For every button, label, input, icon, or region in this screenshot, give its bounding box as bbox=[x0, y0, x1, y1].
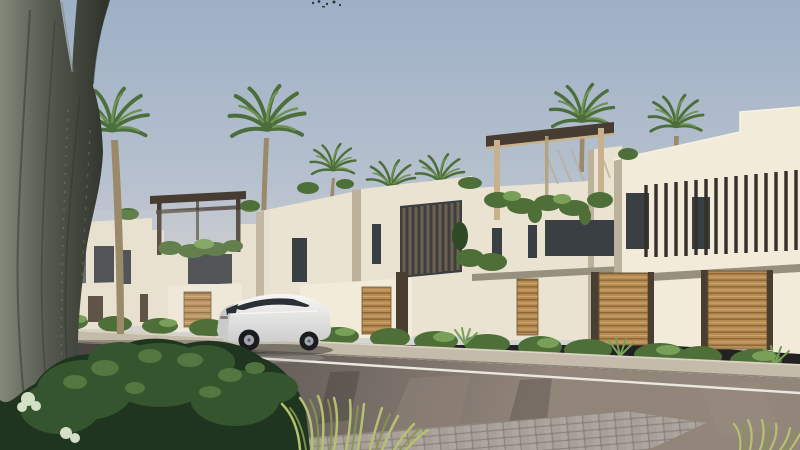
window-slot bbox=[372, 224, 381, 264]
car-taillight bbox=[220, 316, 228, 319]
garage-wood-panel bbox=[517, 279, 538, 335]
door-jamb bbox=[648, 272, 654, 346]
car-wheel-front bbox=[300, 332, 319, 351]
garage-wood-panel bbox=[599, 273, 648, 345]
villa-street-render bbox=[0, 0, 800, 450]
door-jamb bbox=[591, 272, 599, 346]
window-slot bbox=[528, 225, 537, 258]
window-large-dark bbox=[545, 220, 625, 256]
villa-louver bbox=[346, 176, 472, 338]
garage-wood-panel bbox=[362, 287, 391, 334]
door-jamb bbox=[701, 270, 708, 349]
window-slot bbox=[292, 238, 307, 282]
garage-wood-panel bbox=[708, 271, 767, 349]
door-jamb bbox=[396, 272, 408, 336]
door-jamb bbox=[767, 270, 773, 350]
